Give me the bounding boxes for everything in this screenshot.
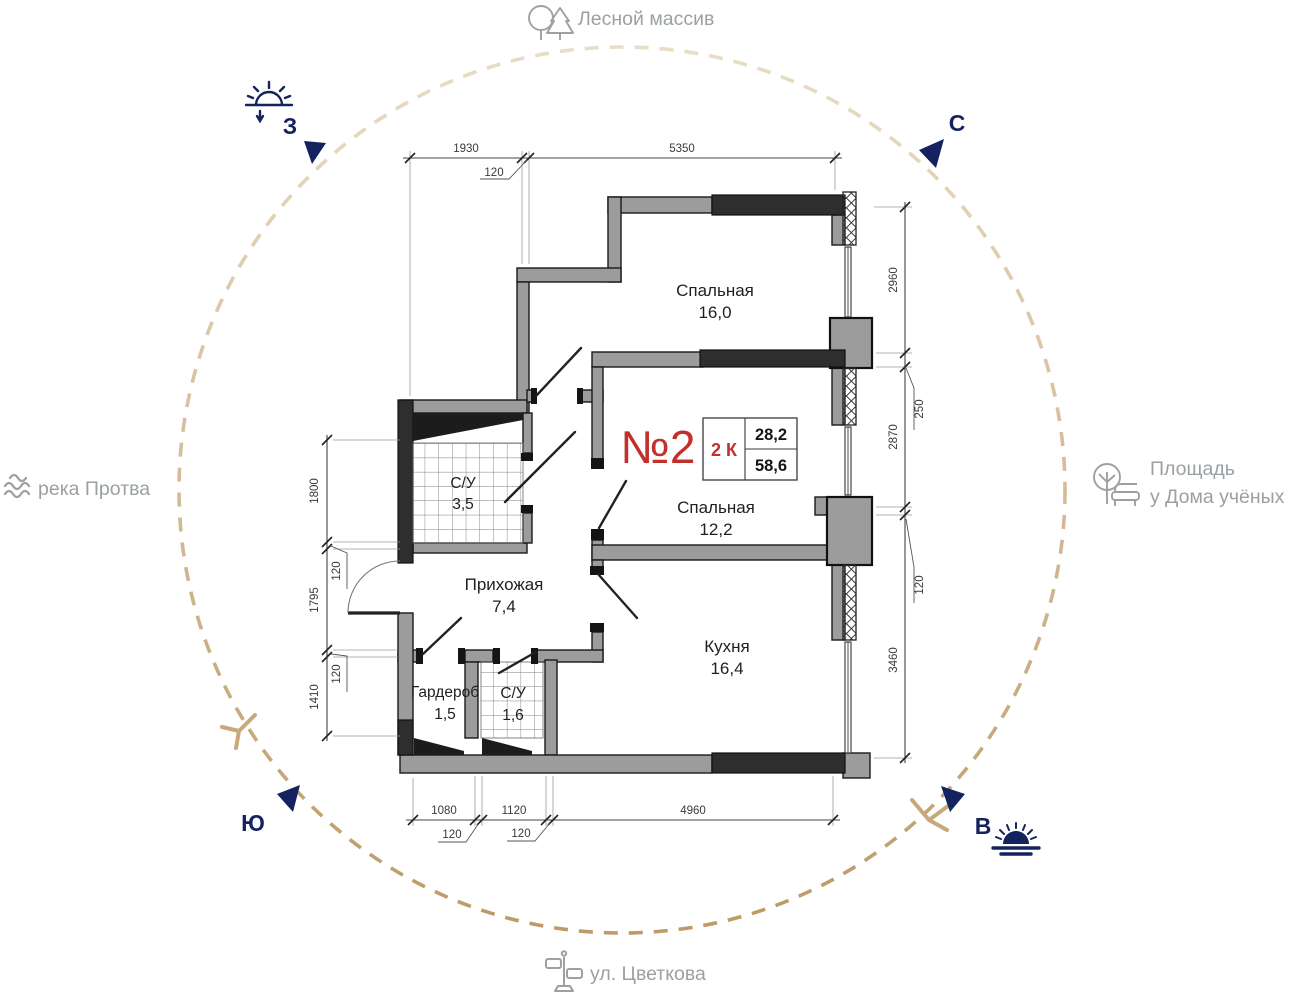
west-label: З bbox=[283, 113, 297, 139]
entrance-door bbox=[348, 561, 400, 613]
dim-left-1795: 1795 bbox=[309, 587, 321, 613]
apartment-number: №2 bbox=[621, 421, 696, 473]
bathroom-tiles bbox=[413, 443, 523, 543]
room-label-bedroom2: Спальная bbox=[677, 498, 755, 517]
room-label-bath1: С/У bbox=[450, 475, 476, 492]
sunrise-icon bbox=[993, 823, 1039, 854]
signpost-icon bbox=[546, 951, 582, 991]
dim-top-120: 120 bbox=[484, 167, 503, 179]
dim-right-3460: 3460 bbox=[888, 647, 900, 673]
twig-icon bbox=[912, 800, 948, 830]
room-area-bath2: 1,6 bbox=[502, 707, 524, 724]
room-label-hall: Прихожая bbox=[465, 575, 544, 594]
dim-right-2870: 2870 bbox=[888, 424, 900, 450]
door-leaf bbox=[423, 618, 461, 654]
dim-bottom-1080: 1080 bbox=[431, 805, 457, 817]
dim-top-5350: 5350 bbox=[669, 143, 695, 155]
north-label: С bbox=[949, 110, 966, 136]
window-pier bbox=[827, 497, 872, 565]
dim-bottom-120b: 120 bbox=[511, 828, 530, 840]
trees-icon bbox=[529, 6, 573, 40]
room-area-bedroom2: 12,2 bbox=[699, 520, 732, 539]
door-leaf bbox=[598, 574, 637, 618]
west-arrow bbox=[304, 141, 326, 164]
vent-shaft bbox=[482, 738, 532, 755]
room-area-kitchen: 16,4 bbox=[710, 659, 743, 678]
apartment-type: 2 К bbox=[711, 440, 738, 460]
room-area-bath1: 3,5 bbox=[452, 496, 474, 513]
dim-left-1410: 1410 bbox=[309, 684, 321, 710]
park-bench-icon bbox=[1094, 464, 1139, 506]
dim-right-2960: 2960 bbox=[888, 267, 900, 293]
dim-bottom-120a: 120 bbox=[442, 829, 461, 841]
landmark-forest: Лесной массив bbox=[578, 8, 714, 30]
room-label-wardrobe: Гардероб bbox=[411, 684, 479, 701]
landmark-river: река Протва bbox=[38, 478, 150, 500]
landmark-square-line1: Площадь bbox=[1150, 458, 1235, 480]
window-frame bbox=[843, 192, 856, 245]
apartment-plan: 1930 120 5350 2960 250 2870 120 3460 180… bbox=[309, 143, 926, 842]
vent-shaft bbox=[413, 413, 523, 441]
room-label-kitchen: Кухня bbox=[704, 637, 750, 656]
door-leaf bbox=[536, 348, 581, 396]
south-arrow bbox=[277, 785, 300, 812]
dim-left-120a: 120 bbox=[331, 561, 343, 580]
apartment-total-area: 58,6 bbox=[755, 457, 787, 475]
dim-bottom-4960: 4960 bbox=[680, 805, 706, 817]
landmark-square-line2: у Дома учёных bbox=[1150, 486, 1285, 508]
window-frame bbox=[843, 565, 856, 640]
dim-top-1930: 1930 bbox=[453, 143, 479, 155]
east-label: В bbox=[975, 813, 992, 839]
vent-shaft bbox=[414, 738, 464, 755]
apartment-living-area: 28,2 bbox=[755, 426, 787, 444]
room-area-hall: 7,4 bbox=[492, 597, 516, 616]
waves-icon bbox=[5, 475, 29, 497]
room-label-bedroom1: Спальная bbox=[676, 281, 754, 300]
south-label: Ю bbox=[241, 810, 265, 836]
dim-right-120: 120 bbox=[914, 575, 926, 594]
door-leaf bbox=[599, 481, 626, 528]
floor-plan-canvas: З С Ю В bbox=[0, 0, 1300, 995]
room-area-bedroom1: 16,0 bbox=[698, 303, 731, 322]
window-frame bbox=[843, 368, 856, 425]
landmark-street: ул. Цветкова bbox=[590, 963, 706, 985]
room-area-wardrobe: 1,5 bbox=[434, 706, 456, 723]
dim-right-250: 250 bbox=[914, 399, 926, 418]
room-label-bath2: С/У bbox=[500, 685, 526, 702]
north-arrow bbox=[919, 139, 944, 168]
dim-left-1800: 1800 bbox=[309, 478, 321, 504]
site-plan-page: З С Ю В bbox=[0, 0, 1300, 995]
dim-left-120b: 120 bbox=[331, 664, 343, 683]
dim-bottom-1120: 1120 bbox=[502, 805, 527, 817]
apartment-info-table: 2 К 28,2 58,6 bbox=[703, 418, 797, 480]
